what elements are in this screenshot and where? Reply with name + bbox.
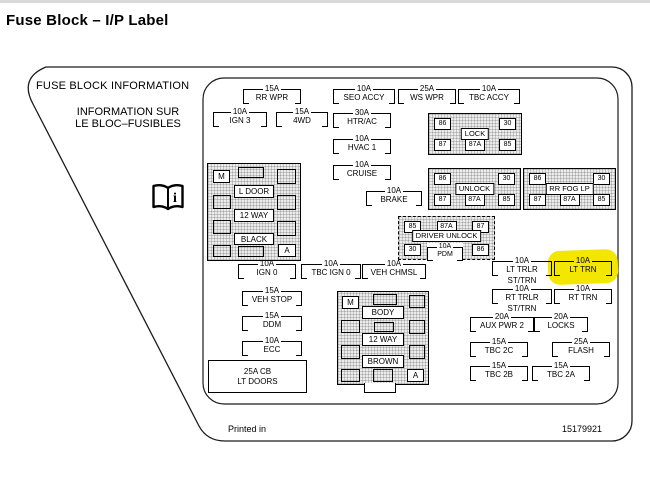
svg-text:i: i	[173, 191, 177, 206]
fuse-name: RT TRN	[554, 293, 612, 304]
relay-pin-87: 87	[529, 194, 546, 206]
fuse-name: CRUISE	[333, 169, 391, 180]
fuse-brake: 10A BRAKE	[366, 186, 422, 206]
fuse-name: LT TRLR	[492, 265, 552, 276]
fuse-ign-0: 10A IGN 0	[238, 259, 296, 279]
fuse-amp: 25A	[552, 337, 610, 346]
connector-corner-m: M	[213, 170, 230, 183]
fuse-rt-trlr-st-trn: 10A RT TRLR ST/TRN	[492, 284, 552, 313]
connector-label: L DOOR	[234, 185, 274, 198]
connector-pin	[277, 221, 296, 236]
fuse-name: TBC IGN 0	[301, 268, 361, 279]
fuse-name: ECC	[242, 345, 302, 356]
connector-body: M BODY 12 WAY BROWN A	[337, 291, 429, 385]
connector-corner-m: M	[342, 296, 359, 309]
fuse-name: TBC 2B	[470, 370, 528, 381]
fuse-flash: 25A FLASH	[552, 337, 610, 357]
relay-lock: 86 30 LOCK 87 87A 85	[428, 113, 522, 155]
fuse-name: PDM	[427, 251, 463, 261]
connector-pin	[238, 246, 264, 257]
breaker-name: LT DOORS	[237, 377, 277, 387]
fuse-4wd: 15A 4WD	[276, 107, 328, 127]
fuse-name: TBC 2C	[470, 346, 528, 357]
fuse-name: WS WPR	[398, 93, 456, 104]
fuse-amp: 10A	[333, 84, 395, 93]
connector-pin	[213, 220, 231, 234]
fuse-block-label-page: Fuse Block – I/P Label FUSE BLOCK INFORM…	[0, 0, 650, 482]
relay-pin-30: 30	[593, 173, 610, 185]
connector-pin	[213, 245, 231, 257]
connector-pin	[277, 169, 296, 184]
fuse-rt-trn: 10A RT TRN	[554, 284, 612, 304]
fuse-name: TBC ACCY	[458, 93, 520, 104]
fuse-hvac-1: 10A HVAC 1	[333, 134, 391, 154]
label-outline-drawing	[0, 0, 650, 482]
fuse-amp: 10A	[213, 107, 267, 116]
fuse-name: VEH CHMSL	[362, 268, 426, 279]
relay-label: DRIVER UNLOCK	[412, 230, 482, 242]
connector-corner-a: A	[278, 244, 296, 257]
fuse-amp: 10A	[238, 259, 296, 268]
fuse-amp: 10A	[242, 336, 302, 345]
fuse-amp: 10A	[554, 284, 612, 293]
connector-pin	[409, 320, 425, 334]
fuse-tbc-2b: 15A TBC 2B	[470, 361, 528, 381]
fuse-name: 4WD	[276, 116, 328, 127]
connector-pin	[341, 320, 360, 333]
fuse-name: IGN 3	[213, 116, 267, 127]
connector-label: BROWN	[362, 355, 404, 368]
fuse-amp: 30A	[333, 108, 391, 117]
fuse-amp: 10A	[492, 284, 552, 293]
fuse-name: SEO ACCY	[333, 93, 395, 104]
fuse-name: LOCKS	[534, 321, 588, 332]
fuse-name: RR WPR	[243, 93, 301, 104]
fuse-tbc-2a: 15A TBC 2A	[532, 361, 590, 381]
fuse-name: HTR/AC	[333, 117, 391, 128]
fuse-amp: 10A	[362, 259, 426, 268]
relay-pin-87: 87	[434, 194, 451, 206]
fuse-veh-chmsl: 10A VEH CHMSL	[362, 259, 426, 279]
fuse-amp: 15A	[276, 107, 328, 116]
page-top-rule	[0, 0, 650, 3]
relay-pin-30: 30	[404, 244, 421, 256]
fuse-aux-pwr-2: 20A AUX PWR 2	[470, 312, 534, 332]
relay-pin-87a: 87A	[560, 194, 580, 206]
fuse-name: HVAC 1	[333, 143, 391, 154]
relay-pin-87: 87	[434, 139, 451, 151]
relay-rr-fog-lp: 86 30 RR FOG LP 87 87A 85	[523, 168, 616, 210]
fuse-amp: 15A	[243, 84, 301, 93]
part-number: 15179921	[562, 424, 602, 434]
fuse-lt-trn: 10A LT TRN	[554, 256, 612, 276]
fuse-amp: 15A	[242, 311, 302, 320]
fuse-tbc-ign-0: 10A TBC IGN 0	[301, 259, 361, 279]
connector-corner-a: A	[407, 369, 424, 382]
heading-english: FUSE BLOCK INFORMATION	[36, 80, 189, 92]
fuse-name: AUX PWR 2	[470, 321, 534, 332]
connector-pin	[341, 369, 360, 382]
breaker-amp: 25A CB	[244, 367, 271, 377]
fuse-amp: 10A	[301, 259, 361, 268]
relay-pin-85: 85	[498, 194, 515, 206]
fuse-amp: 20A	[534, 312, 588, 321]
relay-pin-87a: 87A	[465, 139, 485, 151]
fuse-pdm: 10A PDM	[427, 243, 463, 261]
fuse-htr-ac: 30A HTR/AC	[333, 108, 391, 128]
connector-label: 12 WAY	[234, 209, 274, 222]
fuse-amp: 15A	[532, 361, 590, 370]
relay-unlock: 86 30 UNLOCK 87 87A 85	[428, 168, 521, 210]
connector-pin	[277, 195, 296, 210]
relay-pin-86: 86	[434, 118, 451, 130]
fuse-amp: 10A	[333, 134, 391, 143]
connector-label: BODY	[362, 306, 404, 319]
fuse-amp: 15A	[242, 286, 302, 295]
fuse-amp: 10A	[366, 186, 422, 195]
connector-pin	[213, 195, 231, 209]
fuse-ign-3: 10A IGN 3	[213, 107, 267, 127]
open-book-info-icon: i	[151, 183, 185, 217]
fuse-cruise: 10A CRUISE	[333, 160, 391, 180]
fuse-veh-stop: 15A VEH STOP	[242, 286, 302, 306]
fuse-ddm: 15A DDM	[242, 311, 302, 331]
fuse-name: LT TRN	[554, 265, 612, 276]
fuse-amp: 15A	[470, 361, 528, 370]
connector-tab	[364, 383, 396, 393]
fuse-amp: 10A	[492, 256, 552, 265]
fuse-amp: 10A	[333, 160, 391, 169]
fuse-ecc: 10A ECC	[242, 336, 302, 356]
printed-in-text: Printed in	[228, 424, 266, 434]
connector-pin	[409, 345, 425, 359]
fuse-locks: 20A LOCKS	[534, 312, 588, 332]
fuse-seo-accy: 10A SEO ACCY	[333, 84, 395, 104]
fuse-amp: 10A	[554, 256, 612, 265]
connector-pin	[409, 295, 425, 308]
fuse-name: VEH STOP	[242, 295, 302, 306]
fuse-amp: 10A	[458, 84, 520, 93]
fuse-amp: 20A	[470, 312, 534, 321]
relay-pin-87a: 87A	[465, 194, 485, 206]
page-title: Fuse Block – I/P Label	[6, 12, 169, 29]
connector-l-door: M L DOOR 12 WAY BLACK A	[207, 163, 301, 261]
connector-label: BLACK	[234, 233, 274, 245]
fuse-name: RT TRLR	[492, 293, 552, 304]
heading-french-line2: LE BLOC–FUSIBLES	[75, 118, 181, 130]
fuse-tbc-2c: 15A TBC 2C	[470, 337, 528, 357]
fuse-rr-wpr: 15A RR WPR	[243, 84, 301, 104]
heading-french: INFORMATION SUR LE BLOC–FUSIBLES	[58, 106, 198, 130]
fuse-amp: 25A	[398, 84, 456, 93]
connector-pin	[374, 322, 394, 332]
connector-label: 12 WAY	[362, 333, 404, 346]
heading-french-line1: INFORMATION SUR	[77, 106, 179, 118]
fuse-ws-wpr: 25A WS WPR	[398, 84, 456, 104]
relay-pin-86: 86	[529, 173, 546, 185]
relay-pin-85: 85	[499, 139, 516, 151]
relay-pin-30: 30	[498, 173, 515, 185]
connector-pin	[238, 167, 264, 178]
connector-pin	[341, 345, 360, 359]
fuse-name: BRAKE	[366, 195, 422, 206]
fuse-name: TBC 2A	[532, 370, 590, 381]
relay-pin-85: 85	[593, 194, 610, 206]
fuse-lt-trlr-st-trn: 10A LT TRLR ST/TRN	[492, 256, 552, 285]
fuse-name: DDM	[242, 320, 302, 331]
relay-pin-86: 86	[472, 244, 489, 256]
fuse-tbc-accy: 10A TBC ACCY	[458, 84, 520, 104]
fuse-amp: 15A	[470, 337, 528, 346]
fuse-name: FLASH	[552, 346, 610, 357]
connector-pin	[373, 294, 397, 305]
fuse-name: IGN 0	[238, 268, 296, 279]
relay-pin-86: 86	[434, 173, 451, 185]
circuit-breaker-lt-doors: 25A CB LT DOORS	[208, 360, 307, 393]
connector-pin	[373, 369, 393, 382]
relay-pin-30: 30	[499, 118, 516, 130]
